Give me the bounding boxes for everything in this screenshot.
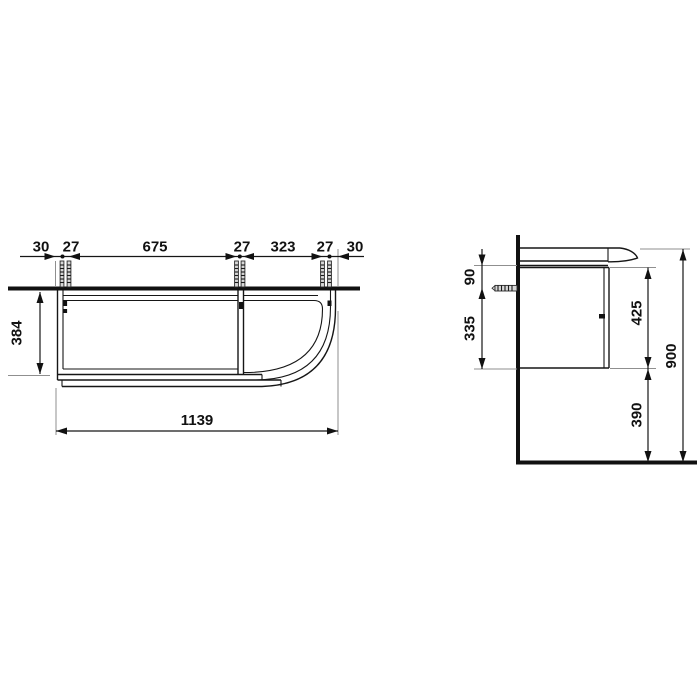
dim-label-cabinet-height: 425 xyxy=(629,300,646,325)
wall-anchor-icon xyxy=(67,261,71,287)
dim-label-edge-right: 30 xyxy=(347,239,364,256)
dim-label-edge-left: 30 xyxy=(33,239,50,256)
dim-label-pair-left: 27 xyxy=(63,239,80,256)
dimension-drawing: 30 27 675 27 323 27 30 384 1139 xyxy=(0,0,700,700)
wall-anchor-icon-side xyxy=(492,285,517,291)
dim-label-span-right: 323 xyxy=(270,239,295,256)
canvas-background xyxy=(0,0,700,700)
dim-label-pair-right: 27 xyxy=(317,239,334,256)
dim-label-depth: 384 xyxy=(9,320,26,346)
dim-label-overall-width: 1139 xyxy=(181,412,214,429)
dim-label-overall-height: 900 xyxy=(663,343,680,368)
dim-label-pair-mid: 27 xyxy=(234,239,251,256)
wall-anchor-icon xyxy=(321,261,325,287)
wall-anchor-icon xyxy=(235,261,239,287)
dim-label-span-main: 675 xyxy=(142,239,167,256)
dim-label-anchor-to-bottom: 335 xyxy=(462,316,479,341)
dim-label-basin-to-anchor: 90 xyxy=(462,269,479,286)
wall-anchor-icon xyxy=(60,261,64,287)
wall-anchor-icon xyxy=(328,261,332,287)
handle-mark xyxy=(599,314,605,319)
dim-label-floor-clearance: 390 xyxy=(629,402,646,427)
wall-anchor-icon xyxy=(241,261,245,287)
